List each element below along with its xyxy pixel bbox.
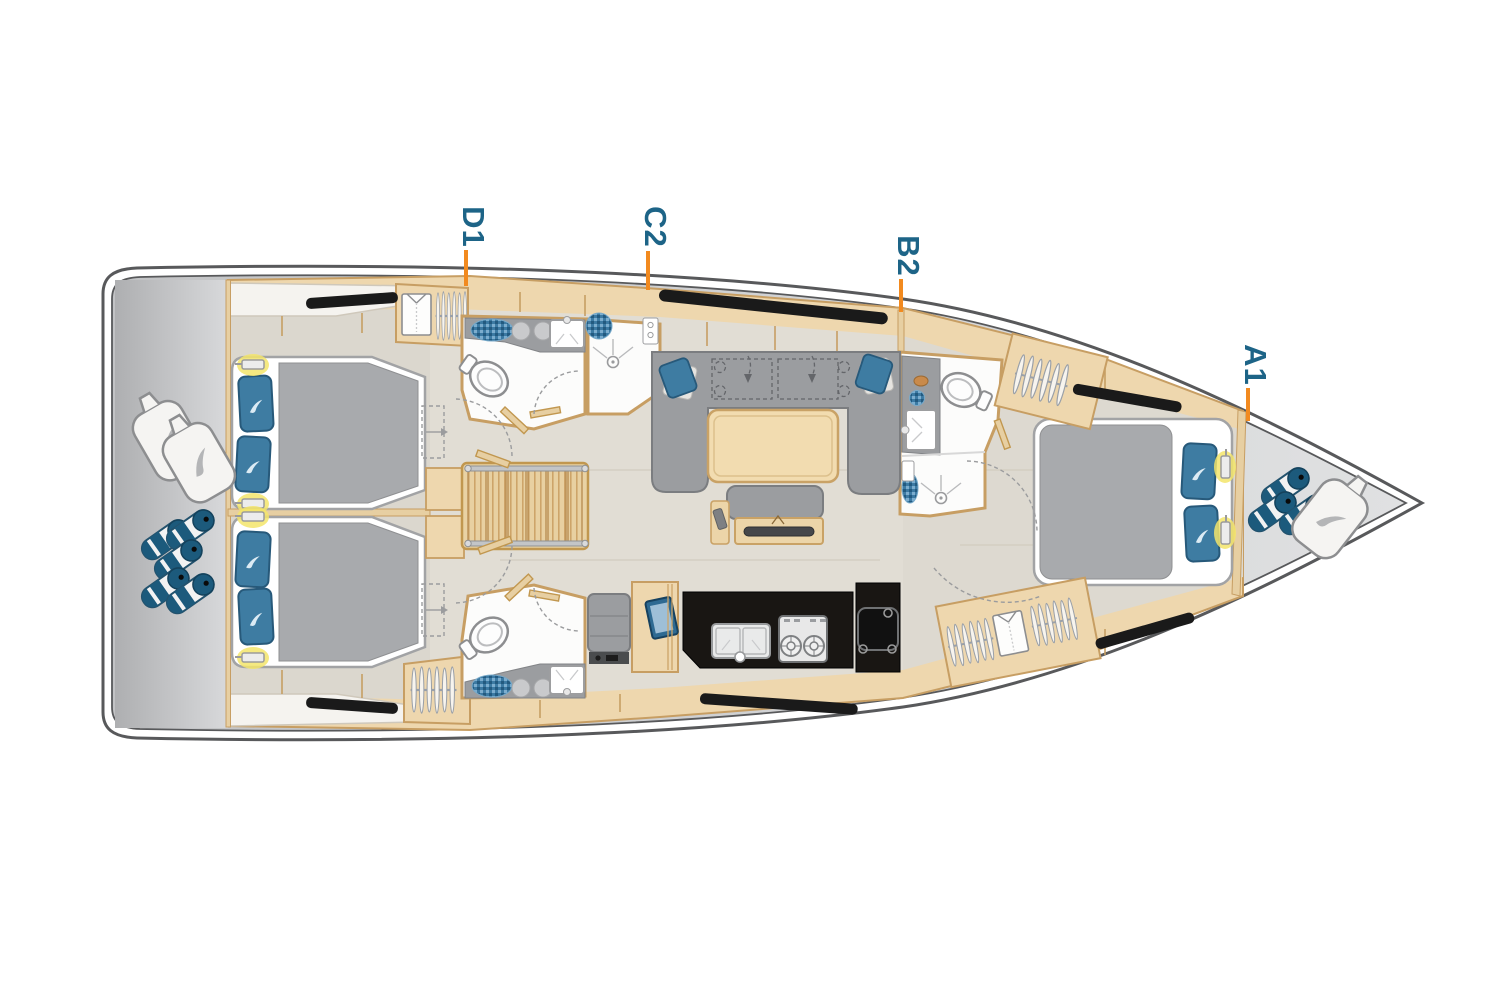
shower-panel (902, 461, 914, 481)
faucet-icon (901, 426, 909, 434)
pillow-icon (1181, 443, 1217, 500)
handrail (466, 466, 586, 471)
bed-blanket (279, 523, 418, 661)
flower-mat (910, 391, 925, 406)
deck-plan-graphic (0, 0, 1500, 1000)
bed-blanket (1040, 425, 1172, 579)
cabin-label-b2: B2 (885, 233, 931, 279)
basin (512, 322, 530, 340)
shower-mat (586, 313, 612, 339)
bath-mat (472, 675, 512, 697)
bed-blanket (279, 363, 418, 503)
cabin-label-a1: A1 (1232, 342, 1278, 388)
salon-table (708, 410, 838, 482)
head-top (454, 313, 660, 429)
nav-station (588, 582, 678, 672)
pillow-icon (235, 531, 271, 588)
faucet-icon (564, 689, 571, 696)
settee-bench (727, 486, 823, 519)
salon-bulkhead (898, 310, 904, 356)
stern-deck (115, 280, 228, 728)
burner-icon (804, 636, 824, 656)
wardrobe-aft-starboard (404, 656, 470, 724)
cabin-label-d1: D1 (450, 204, 496, 250)
pillow-icon (238, 375, 274, 432)
aft-cabin-port (232, 354, 425, 515)
wardrobe-aft-port (396, 284, 468, 346)
aft-cabin-starboard (232, 506, 425, 669)
faucet-icon (564, 317, 571, 324)
sink (550, 320, 584, 348)
sink (906, 410, 936, 450)
folded-shirt-icon (402, 294, 431, 335)
stern-bulkhead (226, 280, 231, 727)
burner-icon (781, 636, 801, 656)
bath-mat (471, 319, 513, 341)
galley (683, 583, 900, 672)
cabin-label-c2: C2 (632, 204, 678, 250)
yacht-deck-plan: D1 C2 B2 A1 (0, 0, 1500, 1000)
shower-panel (643, 318, 658, 344)
nav-desk (588, 594, 630, 652)
soap (914, 376, 928, 386)
basin (512, 679, 530, 697)
pillow-icon (238, 588, 274, 645)
faucet-icon (735, 652, 745, 662)
pillow-icon (235, 436, 271, 493)
head-bottom (454, 585, 585, 698)
